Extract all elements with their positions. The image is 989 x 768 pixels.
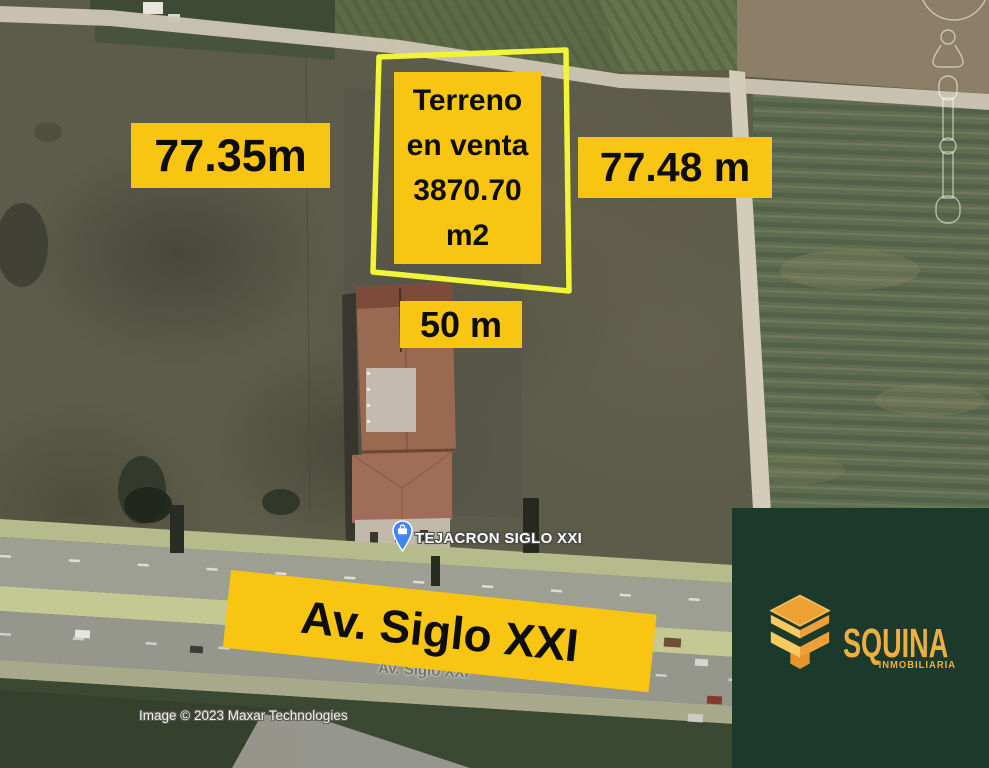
sale-line-1: Terreno [413, 78, 522, 123]
sale-line-3: 3870.70 [413, 168, 521, 213]
brand-panel: SQUINA INMOBILIARIA [732, 508, 989, 768]
measure-right-label: 77.48 m [578, 137, 772, 198]
measure-front-label: 50 m [400, 301, 522, 348]
listing-flyer: Av. Siglo XXI TEJACRON SIGLO XXI Image ©… [0, 0, 989, 768]
brand-logo-icon [765, 594, 835, 676]
place-label: TEJACRON SIGLO XXI [415, 530, 582, 547]
measure-left-label: 77.35m [131, 123, 330, 188]
sale-line-4: m2 [446, 213, 489, 258]
imagery-attribution: Image © 2023 Maxar Technologies [139, 708, 348, 723]
sale-info-box: Terreno en venta 3870.70 m2 [394, 72, 541, 264]
place-pin-icon[interactable] [392, 520, 413, 553]
place-marker[interactable]: TEJACRON SIGLO XXI [392, 520, 582, 553]
sale-line-2: en venta [407, 123, 529, 168]
brand-tagline: INMOBILIARIA [878, 659, 956, 671]
